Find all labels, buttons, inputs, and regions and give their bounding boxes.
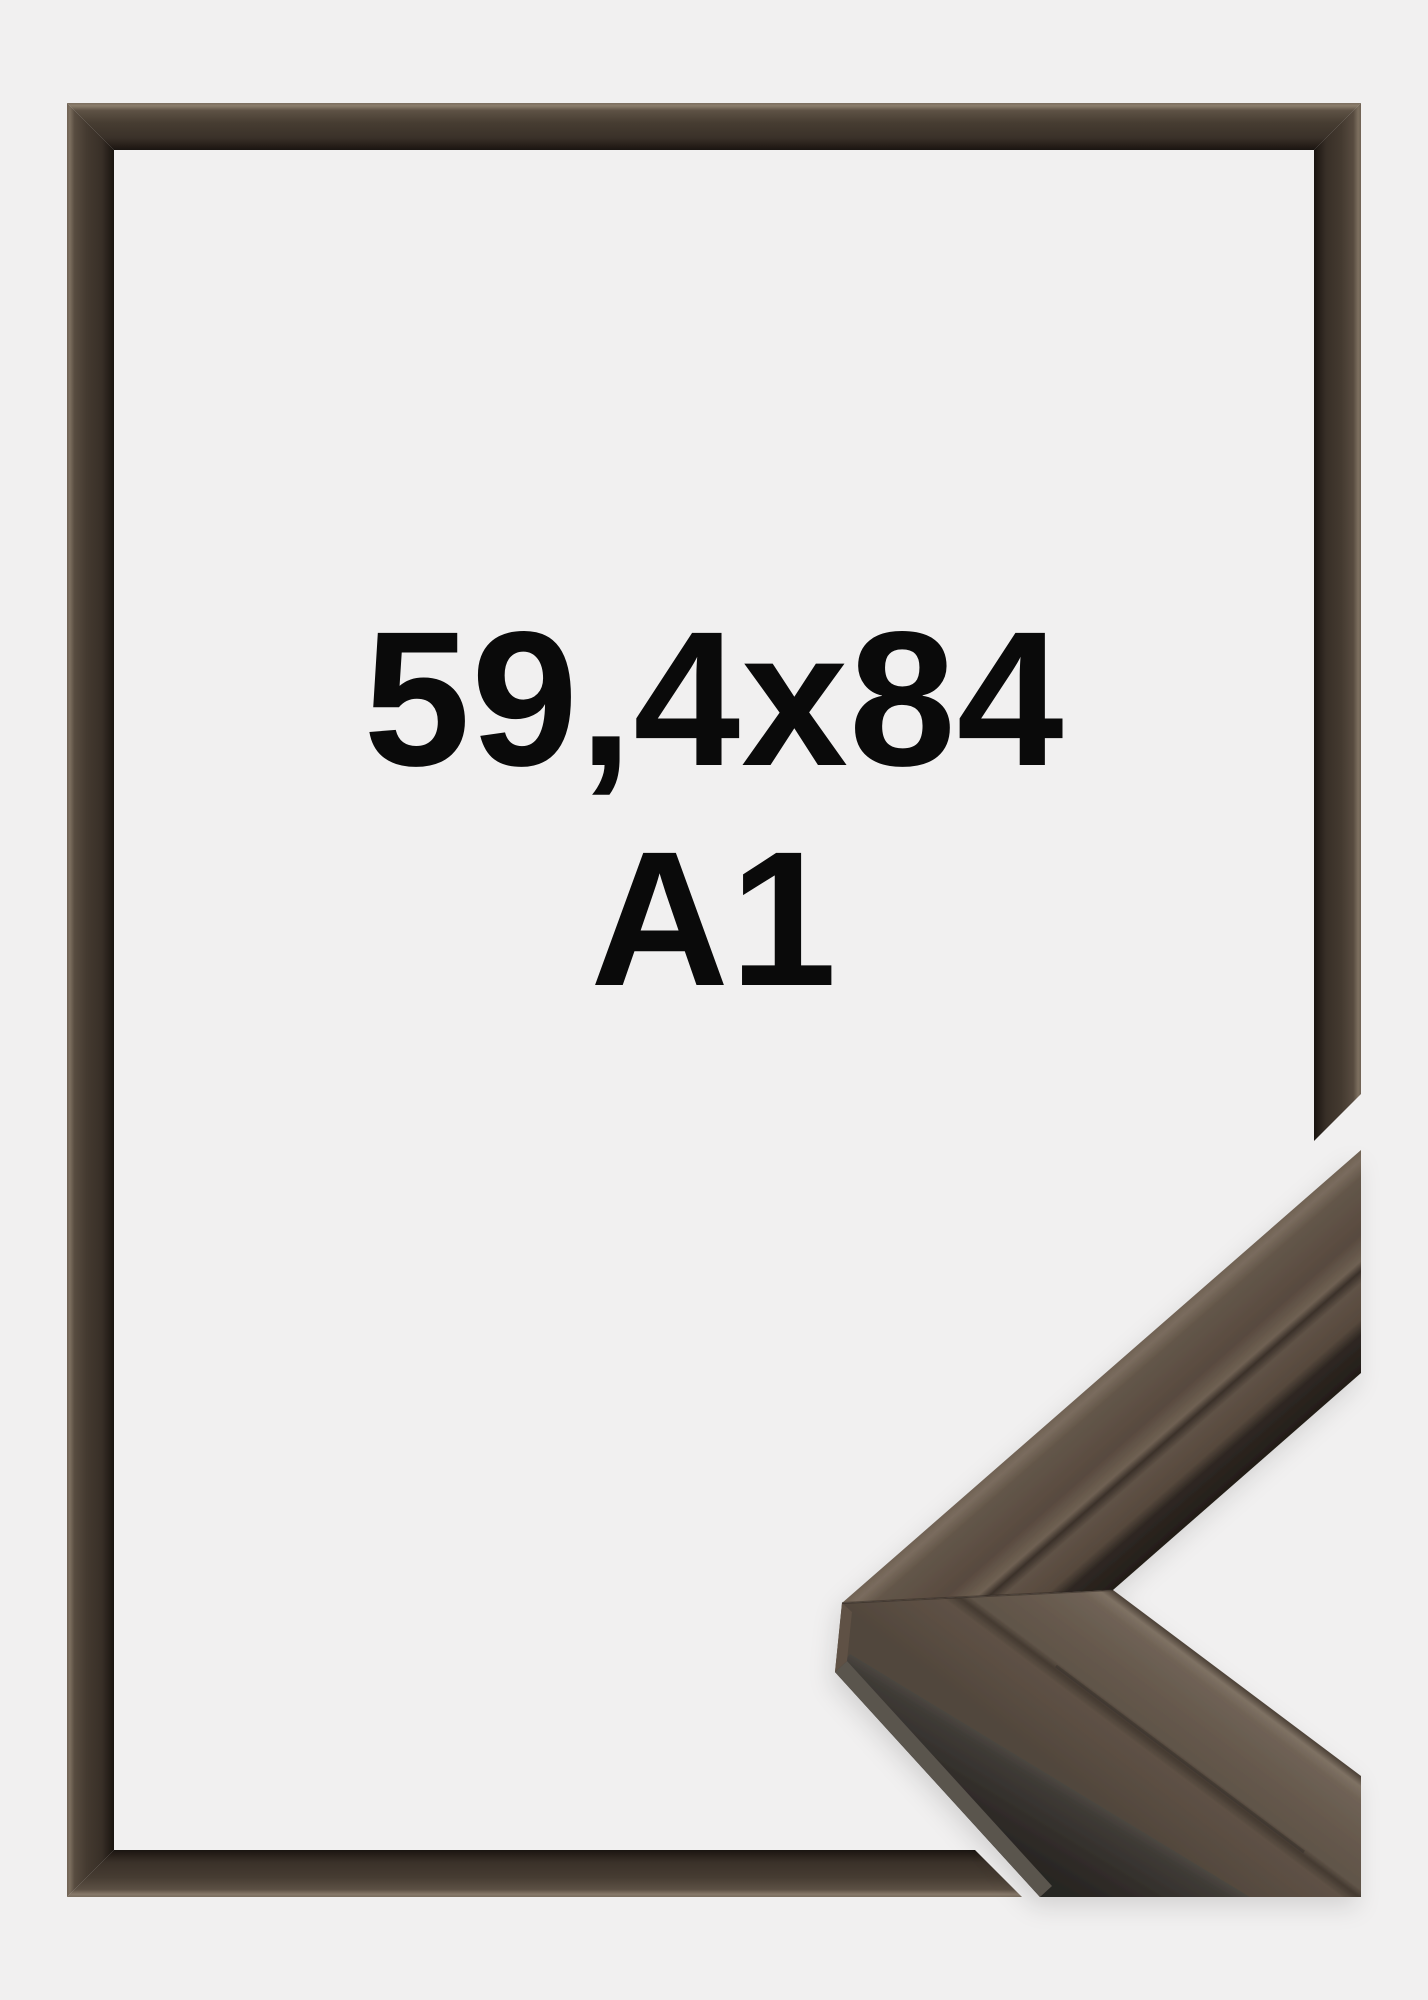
frame-bottom-border — [67, 1850, 1022, 1897]
size-label: 59,4x84 — [0, 603, 1428, 795]
format-label: A1 — [0, 823, 1428, 1015]
corner-sample — [835, 1150, 1361, 1897]
product-image: 59,4x84 A1 — [0, 0, 1428, 2000]
frame-top-border — [67, 103, 1361, 150]
corner-sample-upper-arm — [842, 1150, 1361, 1603]
